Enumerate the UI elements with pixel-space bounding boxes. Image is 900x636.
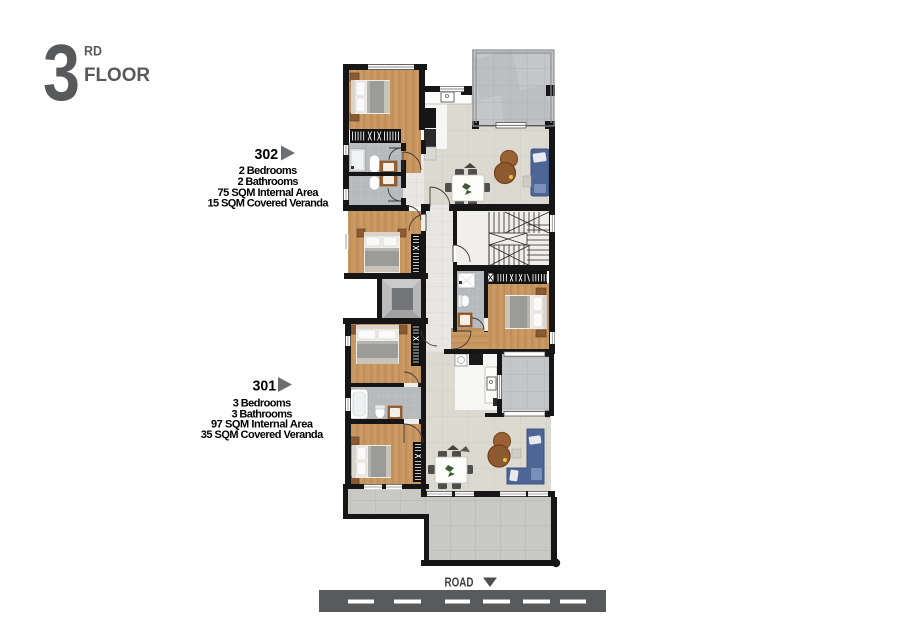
svg-text:RD: RD [84,44,102,59]
svg-text:3: 3 [43,28,80,117]
svg-text:15 SQM Covered Veranda: 15 SQM Covered Veranda [208,198,330,210]
svg-text:FLOOR: FLOOR [84,64,150,86]
svg-text:302: 302 [255,146,279,163]
svg-text:301: 301 [253,378,277,395]
svg-text:ROAD: ROAD [445,576,474,590]
svg-text:35 SQM Covered Veranda: 35 SQM Covered Veranda [201,429,324,441]
